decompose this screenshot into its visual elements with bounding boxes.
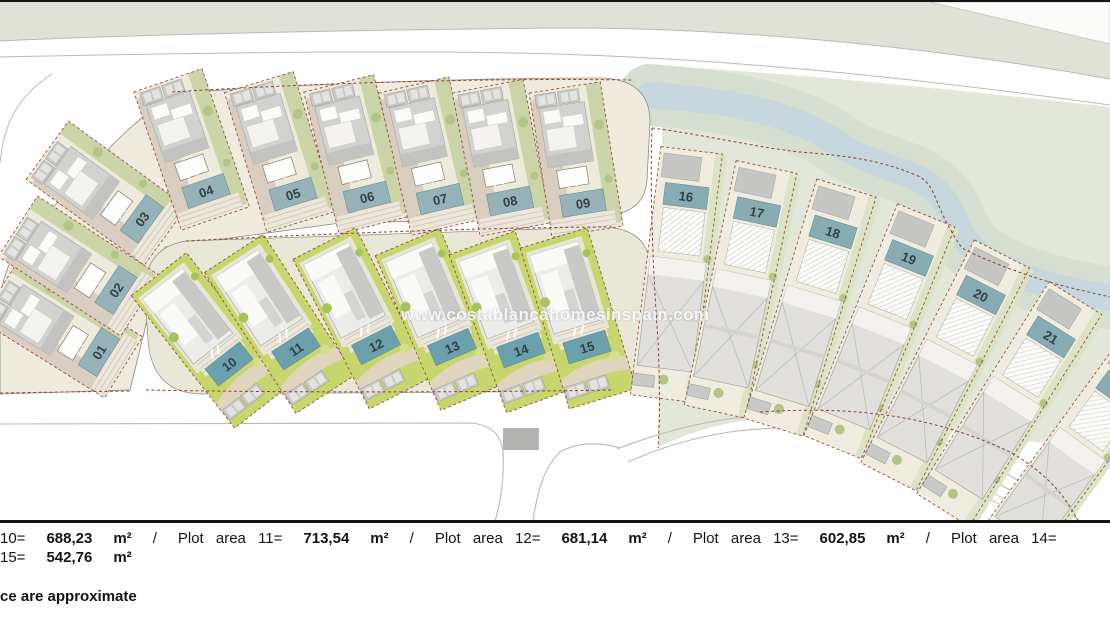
plot-area-text: 713,54 — [303, 530, 349, 547]
plot-area-text: 15= — [0, 549, 25, 566]
plot-area-line-2: 15=542,76m² — [0, 549, 132, 566]
plot-area-text: Plot area 14= — [951, 530, 1057, 547]
terrace — [658, 207, 705, 256]
top-border-line — [0, 0, 1110, 2]
plot-area-text: 681,14 — [561, 530, 607, 547]
plot-number: 08 — [502, 193, 519, 210]
terrace — [724, 221, 774, 273]
plot-area-text: 602,85 — [820, 530, 866, 547]
plot-area-text: / — [668, 530, 672, 547]
plot-area-text: 542,76 — [46, 549, 92, 566]
carport — [661, 153, 702, 181]
car — [632, 373, 655, 388]
plot-area-text: m² — [628, 530, 646, 547]
plot-area-text: / — [926, 530, 930, 547]
plot-area-text: Plot area 13= — [693, 530, 799, 547]
plot-area-text: Plot area 11= — [178, 530, 283, 547]
utility-block — [503, 428, 539, 450]
plot-area-text: m² — [370, 530, 388, 547]
plot-area-text: m² — [113, 530, 131, 547]
footer-divider-line — [0, 520, 1110, 523]
plot-area-text: 688,23 — [46, 530, 92, 547]
villa-building — [539, 102, 594, 168]
footer: 10=688,23m²/Plot area 11=713,54m²/Plot a… — [0, 520, 1110, 626]
plot-area-text: / — [410, 530, 414, 547]
approximate-note: ce are approximate — [0, 588, 137, 605]
plot-area-text: Plot area 12= — [435, 530, 541, 547]
plot-area-text: m² — [886, 530, 904, 547]
plot-number: 17 — [748, 204, 765, 222]
plot-number: 16 — [678, 188, 694, 205]
plot-area-text: m² — [113, 549, 131, 566]
plot-area-line-1: 10=688,23m²/Plot area 11=713,54m²/Plot a… — [0, 530, 1110, 547]
plot-area-text: / — [153, 530, 157, 547]
plot-number: 09 — [575, 195, 592, 212]
plot-area-text: 10= — [0, 530, 25, 547]
site-plan-page: 01 02 — [0, 0, 1110, 626]
